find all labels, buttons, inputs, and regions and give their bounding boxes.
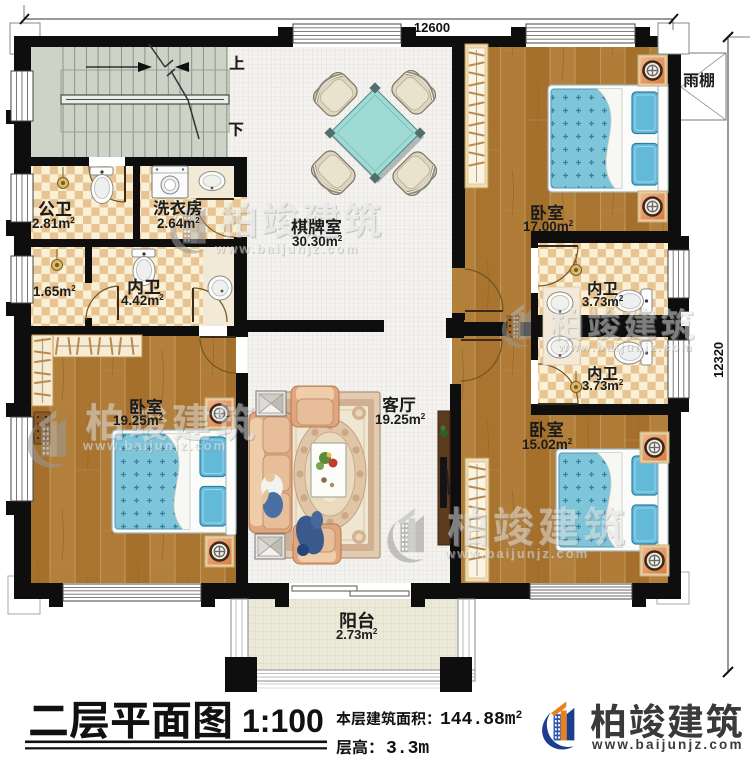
- svg-text:15.02m2: 15.02m2: [522, 437, 573, 452]
- svg-text:3.73m2: 3.73m2: [582, 378, 624, 393]
- svg-text:www.baijunjz.com: www.baijunjz.com: [444, 546, 589, 561]
- svg-text:4.42m2: 4.42m2: [121, 293, 164, 308]
- svg-text:3.3m: 3.3m: [386, 739, 429, 759]
- svg-text:12600: 12600: [414, 20, 450, 35]
- svg-text:19.25m2: 19.25m2: [375, 412, 426, 427]
- svg-text:144.88m2: 144.88m2: [440, 710, 522, 730]
- svg-text:www.baijunjz.com: www.baijunjz.com: [591, 737, 744, 752]
- svg-text:www.baijunjz.com: www.baijunjz.com: [557, 340, 694, 354]
- svg-text:17.00m2: 17.00m2: [523, 219, 574, 234]
- svg-text:19.25m2: 19.25m2: [113, 413, 164, 428]
- svg-text:3.73m2: 3.73m2: [582, 294, 624, 309]
- svg-text:30.30m2: 30.30m2: [292, 234, 343, 249]
- svg-text:2.73m2: 2.73m2: [336, 627, 378, 642]
- svg-text:12320: 12320: [711, 342, 726, 378]
- svg-text:2.64m2: 2.64m2: [157, 216, 200, 231]
- svg-text:2.81m2: 2.81m2: [32, 216, 75, 231]
- svg-text:1.65m2: 1.65m2: [33, 284, 76, 299]
- svg-text:www.baijunjz.com: www.baijunjz.com: [82, 438, 227, 453]
- svg-text:1:100: 1:100: [242, 703, 324, 739]
